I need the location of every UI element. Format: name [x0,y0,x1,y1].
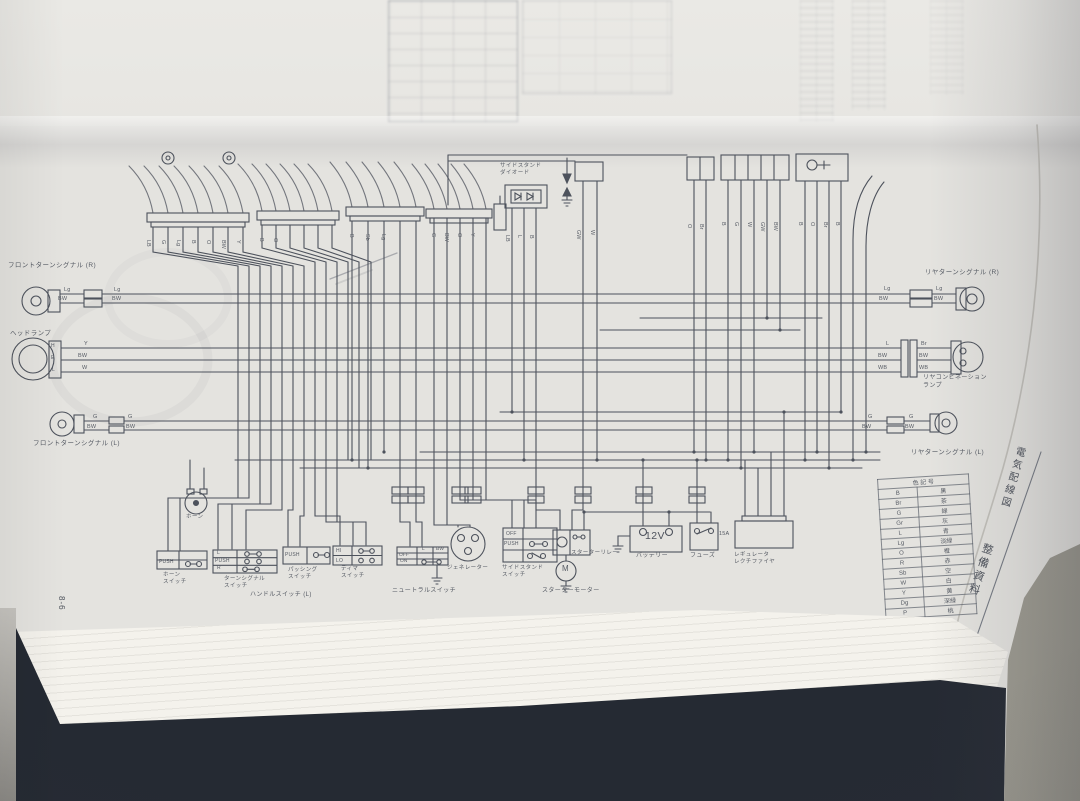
wire-code: G [868,414,872,420]
col-l: L [422,547,425,552]
junction-box-b [721,155,789,180]
wire-code: Y [469,233,475,237]
wire-code: G [909,414,913,420]
wire-code: B [348,234,354,238]
wire-code: B [190,240,196,244]
fuse-rating: 15A [719,531,729,537]
label-starter-motor: スターターモーター [542,588,600,596]
wire-code: BW [772,222,778,231]
wire-code: BW [78,353,87,359]
wire-code: B [528,235,534,239]
row-off: OFF [399,553,409,558]
junction-box-a [687,157,714,180]
wire-code: O [456,233,462,237]
wire-code: BW [112,296,121,302]
wire-code: BW [126,424,135,430]
wire-code: WB [878,365,887,371]
wire-code: Br [822,222,828,228]
motor-letter: M [562,564,569,574]
harness-horizontals [235,318,880,512]
turn-l: L [217,550,220,556]
headlamp-pin-e: E [51,355,55,361]
label-rear-turn-left: リヤターンシグナル (L) [911,449,984,457]
dimmer-hi: HI [336,548,341,554]
wire-code: Lg [936,286,943,292]
wire-code: BW [934,296,943,302]
label-handle-switch: ハンドルスイッチ (L) [250,592,312,600]
manual-photo: フロントターンシグナル (R) ヘッドランプ フロントターンシグナル (L) リ… [0,0,1080,801]
wire-code: BW [87,424,96,430]
wire-code: LB [504,235,510,242]
wire-code: L [516,235,522,238]
wire-code: Lg [884,286,891,292]
wire-code: G [430,233,436,237]
col-bw: BW [436,547,444,552]
wire-code: LB [145,240,151,247]
ss-push: PUSH [504,541,519,547]
wire-code: BW [443,233,449,242]
wire-code: O [205,240,211,244]
horn-push: PUSH [159,559,174,565]
rear-combination-lamp [901,340,983,377]
label-side-stand-diode: サイドスタンド ダイオード [500,163,541,177]
label-rear-combination: リヤコンビネーション ランプ [923,375,987,390]
wire-color-table: 色 記 号 B黒 Br茶 G緑 Gr灰 L青 Lg淡緑 O橙 R赤 Sb空 W白… [877,473,977,619]
passing-push: PUSH [285,552,300,558]
row-on: ON [400,559,408,564]
wire-code: G [93,414,97,420]
wire-code: BW [919,353,928,359]
generator-symbol [451,527,485,561]
wire-code: B [720,222,726,226]
junction-dots [350,316,867,513]
wire-code: GW [759,222,765,231]
wire-code: G [160,240,166,244]
rear-turn-left-lamp [887,412,957,434]
ignition-switch [796,154,848,181]
turn-push: PUSH [215,558,230,564]
wire-code: W [589,230,595,235]
wire-code: GW [575,230,581,239]
connector-bars [147,196,506,230]
wire-code: BW [220,240,226,249]
label-generator: ジェネレーター [447,565,488,572]
wire-code: L [886,341,889,347]
wire-code: BW [878,353,887,359]
rear-turn-right-lamp [910,287,984,311]
turn-r: R [217,565,221,571]
ss-off: OFF [506,531,517,537]
wire-code: W [746,222,752,227]
wire-code: Y [235,240,241,244]
wire-code: W [82,365,87,371]
wire-code: G [733,222,739,226]
wire-code: O [272,238,278,242]
label-headlamp: ヘッドランプ [10,330,51,338]
label-side-stand-switch: サイドスタンド スイッチ [502,565,543,579]
headlamp-pin-l: L [52,367,55,373]
regulator-rectifier-symbol [735,412,793,548]
side-stand-diode [505,185,547,208]
dimmer-lo: LO [336,558,343,564]
wire-code: WB [919,365,928,371]
wire-code: BW [879,296,888,302]
fuse-symbol [690,460,718,550]
label-front-turn-left: フロントターンシグナル (L) [33,440,120,448]
label-regulator: レギュレータ レクチファイヤ [734,552,775,566]
label-horn: ホーン [186,514,203,521]
wire-code: B [258,238,264,242]
label-front-turn-right: フロントターンシグナル (R) [8,262,96,270]
wire-code: Br [698,224,704,230]
wire-code: Y [84,341,88,347]
label-rear-turn-right: リヤターンシグナル (R) [925,269,999,277]
inline-connectors [392,487,705,503]
label-dimmer-switch: ディマ スイッチ [341,566,365,580]
label-neutral-switch: ニュートラルスイッチ [392,588,456,596]
wire-code: B [797,222,803,226]
wire-code: BW [862,424,871,430]
label-battery: バッテリー [636,553,668,561]
wire-code: BW [905,424,914,430]
wire-code: G [128,414,132,420]
label-fuse: フューズ [690,553,715,561]
page-number: 8-6 [56,596,66,611]
wire-code: O [809,222,815,226]
headlamp-pin-h: H [51,343,55,349]
wire-code: Lg [114,287,121,293]
label-starter-relay: スターターリレー [571,550,618,557]
wire-code: BW [58,296,67,302]
wire-code: Lg [175,240,181,246]
label-horn-switch: ホーン スイッチ [163,572,187,586]
harness-top-curves [129,162,486,213]
wire-code: O [686,224,692,228]
wire-code: B [834,222,840,226]
wire-code: Sb [364,234,370,241]
wire-code: Br [921,341,927,347]
label-passing-switch: パッシング スイッチ [288,567,318,581]
label-turn-signal-switch: ターンシグナル スイッチ [224,576,265,590]
wire-code: Lg [64,287,71,293]
wire-code: Lg [380,234,386,240]
left-page-edge [0,608,16,801]
battery-voltage: 12V [645,530,665,543]
horn-symbol [185,460,207,514]
harness-bundle-left [168,262,371,551]
